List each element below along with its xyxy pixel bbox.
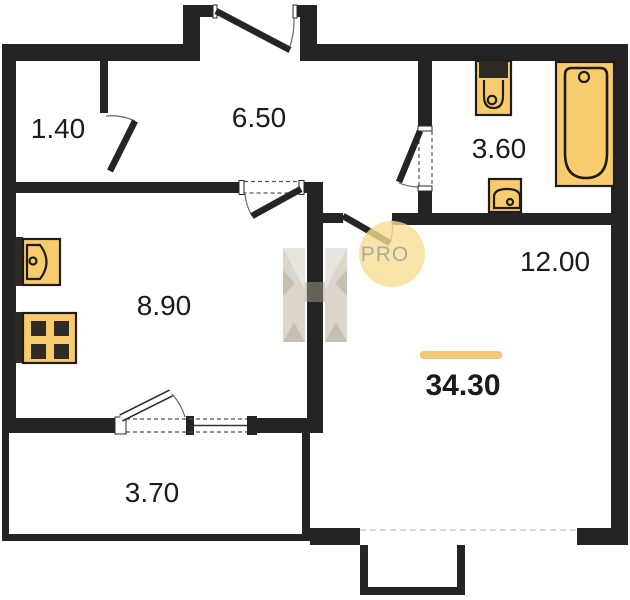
wall-segment	[183, 5, 216, 17]
kitchen-sink-backing	[15, 237, 23, 286]
door-jamb-caps	[115, 5, 432, 434]
wall-segment	[100, 61, 108, 113]
wall-segment	[2, 44, 16, 433]
wall-segment	[310, 528, 360, 545]
closet-area-label: 1.40	[31, 113, 86, 144]
living-area-label: 12.00	[520, 246, 590, 277]
wall-segment	[300, 5, 317, 44]
bathtub-fixture	[556, 62, 614, 186]
bathroom-door-arc	[399, 183, 419, 187]
hallway-area-label: 6.50	[232, 102, 287, 133]
wall-segment	[360, 587, 465, 595]
bathroom-sink-drain	[507, 199, 513, 205]
wall-segment	[418, 187, 432, 225]
burner	[31, 344, 46, 359]
wall-segment	[2, 433, 9, 541]
logo-connector	[305, 282, 325, 302]
kitchen-sink-drain	[30, 258, 37, 265]
wall-segment	[2, 534, 310, 541]
closet-door-leaf	[110, 121, 135, 171]
wall-segment	[577, 528, 628, 545]
kitchen-sink-fixture	[23, 239, 60, 285]
wall-segment	[2, 44, 185, 61]
fixture-backings	[15, 237, 23, 363]
bathroom-area-label: 3.60	[472, 133, 527, 164]
bathtub-faucet	[579, 72, 589, 82]
pro-badge-label: PRO	[361, 243, 410, 266]
wall-segment	[300, 44, 628, 61]
closet-door-arc	[106, 116, 135, 121]
door-swing-arcs	[106, 18, 419, 417]
jamb-cap	[239, 181, 244, 195]
pro-badge-watermark: PRO	[359, 221, 425, 287]
wall-segment	[307, 182, 323, 433]
bathroom-door-opening	[419, 130, 432, 187]
bathroom-door-leaf	[399, 131, 420, 182]
entrance-door-arc	[289, 18, 294, 49]
balcony-door-arc	[172, 394, 185, 417]
burner	[31, 321, 46, 336]
entrance-door-leaf	[216, 11, 290, 50]
wall-segment	[16, 182, 243, 193]
wall-segment	[418, 61, 432, 131]
toilet-drain	[488, 96, 496, 104]
bathroom-sink-fixture	[489, 179, 521, 212]
floor-plan: PRO 1.40 6.50 3.60 8.90 12.00 3.70 34.30	[0, 0, 630, 600]
stove-backing	[15, 312, 23, 363]
balcony-door-leaf	[121, 393, 171, 418]
toilet-tank	[479, 61, 508, 78]
burner	[54, 321, 69, 336]
wall-segment	[457, 545, 465, 595]
jamb-cap	[293, 5, 297, 18]
total-area-label: 34.30	[425, 369, 500, 402]
balcony-door-leaf-face	[121, 393, 171, 418]
wall-segment	[323, 213, 343, 223]
balcony-window-jamb	[247, 416, 257, 435]
balcony-area-label: 3.70	[125, 477, 180, 508]
burner	[54, 344, 69, 359]
wall-segment	[257, 418, 310, 433]
kitchen-door-arc	[245, 194, 252, 216]
floor-plan-canvas: PRO 1.40 6.50 3.60 8.90 12.00 3.70 34.30	[0, 0, 630, 600]
total-area-accent-bar	[420, 351, 502, 359]
wall-segment	[302, 433, 310, 541]
kitchen-area-label: 8.90	[137, 290, 192, 321]
jamb-cap	[418, 126, 432, 131]
bathroom-sink-bowl	[494, 189, 520, 208]
wall-segment	[2, 418, 115, 433]
jamb-cap	[418, 186, 432, 191]
